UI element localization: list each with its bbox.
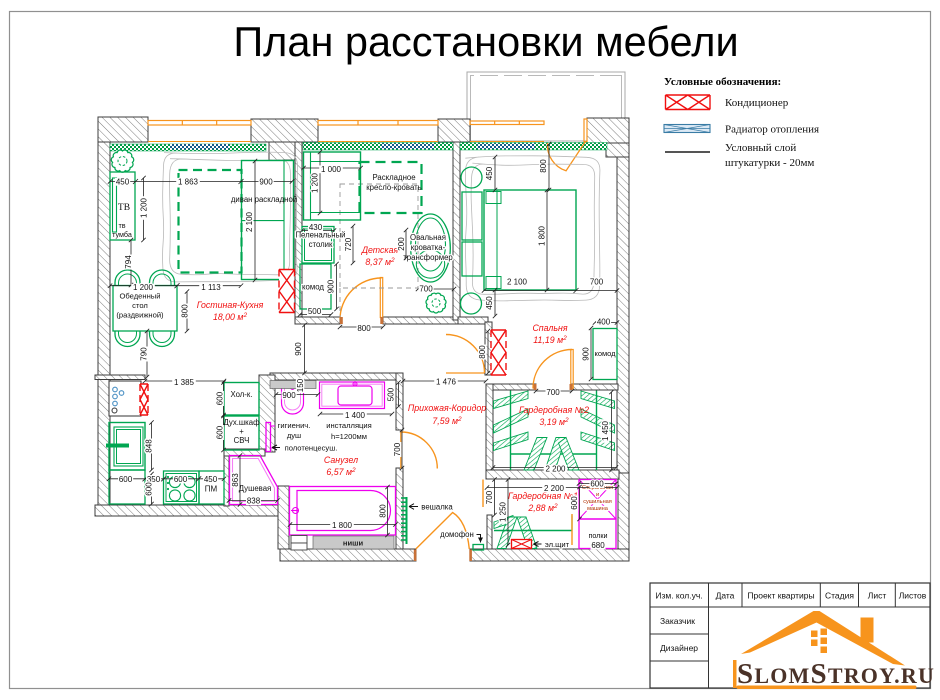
svg-text:ТВ: ТВ [118,203,130,213]
svg-text:900: 900 [582,347,591,361]
svg-text:8,37 м2: 8,37 м2 [365,257,395,267]
svg-text:2 100: 2 100 [507,278,528,287]
svg-text:Обеденный: Обеденный [120,292,161,301]
svg-text:SLOMSTROY.RU: SLOMSTROY.RU [737,658,935,690]
svg-text:машина: машина [587,506,609,512]
svg-text:Радиатор отопления: Радиатор отопления [725,124,819,136]
svg-text:душ: душ [287,431,301,440]
svg-text:+: + [239,427,244,436]
svg-text:штукатурки - 20мм: штукатурки - 20мм [725,157,814,169]
svg-text:1 250: 1 250 [499,501,508,522]
svg-text:900: 900 [294,342,303,356]
svg-text:800: 800 [181,304,190,318]
svg-text:Гардеробная №2: Гардеробная №2 [519,405,589,415]
svg-text:2 100: 2 100 [245,211,254,232]
svg-text:700: 700 [485,490,494,504]
svg-text:1 385: 1 385 [174,378,195,387]
svg-text:800: 800 [379,504,388,518]
svg-text:400: 400 [597,318,611,327]
svg-text:домофон: домофон [440,530,474,539]
svg-text:Дата: Дата [716,591,735,601]
svg-text:18,00 м2: 18,00 м2 [213,312,248,322]
svg-text:Душевая: Душевая [239,484,272,493]
svg-text:430: 430 [309,223,323,232]
svg-text:столик: столик [309,240,333,249]
svg-text:стол: стол [132,301,148,310]
svg-text:150: 150 [296,378,305,392]
svg-text:863: 863 [231,473,240,487]
svg-text:Проект квартиры: Проект квартиры [747,591,814,601]
svg-text:вешалка: вешалка [421,503,453,512]
svg-text:1 200: 1 200 [311,172,320,193]
svg-text:Изм. кол.уч.: Изм. кол.уч. [655,591,702,601]
svg-text:200: 200 [397,237,406,251]
svg-text:720: 720 [344,237,353,251]
svg-text:Лист: Лист [868,591,887,601]
svg-text:1 200: 1 200 [140,197,149,218]
svg-text:и: и [596,492,599,498]
svg-text:1 863: 1 863 [178,177,199,186]
svg-text:6,57 м2: 6,57 м2 [326,467,356,477]
svg-text:838: 838 [247,497,261,506]
svg-text:600: 600 [570,496,579,510]
svg-text:диван раскладной: диван раскладной [231,195,297,204]
svg-text:Заказчик: Заказчик [660,616,695,626]
svg-text:1 000: 1 000 [321,165,342,174]
svg-text:Спальня: Спальня [532,323,567,333]
svg-text:h=1200мм: h=1200мм [331,432,367,441]
svg-text:800: 800 [539,159,548,173]
svg-text:794: 794 [124,255,133,269]
svg-text:600: 600 [119,475,133,484]
svg-text:трансформер: трансформер [403,253,453,262]
svg-text:комод: комод [594,349,616,358]
svg-text:900: 900 [327,279,336,293]
svg-text:Пеленальный: Пеленальный [295,231,345,240]
svg-text:600: 600 [590,480,604,489]
svg-text:450: 450 [485,166,494,180]
svg-text:эл.щит: эл.щит [545,540,570,549]
svg-text:7,59 м2: 7,59 м2 [432,416,462,426]
svg-text:План расстановки мебели: План расстановки мебели [233,18,738,65]
svg-text:Прихожая-Коридор: Прихожая-Коридор [408,403,486,413]
svg-text:700: 700 [393,442,402,456]
svg-text:кресло-кровать: кресло-кровать [366,183,422,192]
svg-text:600: 600 [216,391,225,405]
svg-text:600: 600 [145,482,154,496]
svg-text:11,19 м2: 11,19 м2 [533,335,567,345]
svg-text:900: 900 [282,391,296,400]
svg-text:Санузел: Санузел [324,455,358,465]
svg-text:1 200: 1 200 [133,283,154,292]
svg-text:тв: тв [118,221,125,230]
svg-text:Гостиная-Кухня: Гостиная-Кухня [197,300,264,310]
svg-text:Дизайнер: Дизайнер [660,643,698,653]
svg-text:680: 680 [591,541,605,550]
svg-text:500: 500 [387,387,396,401]
svg-text:1 113: 1 113 [201,283,221,292]
svg-text:1 800: 1 800 [538,225,547,246]
svg-text:полки: полки [588,531,607,540]
svg-text:гигиенич.: гигиенич. [278,421,311,430]
svg-text:инсталляция: инсталляция [326,421,372,430]
svg-text:(раздвижной): (раздвижной) [116,311,164,320]
svg-text:Раскладное: Раскладное [372,173,415,182]
svg-text:800: 800 [357,324,371,333]
svg-text:790: 790 [140,347,149,361]
svg-text:450: 450 [485,296,494,310]
svg-text:1 450: 1 450 [601,420,610,441]
svg-text:900: 900 [259,177,273,186]
svg-text:700: 700 [546,388,560,397]
svg-text:комод: комод [302,283,324,292]
svg-text:600: 600 [216,425,225,439]
svg-text:2 200: 2 200 [544,484,565,493]
svg-text:2,88 м2: 2,88 м2 [527,503,558,513]
svg-text:Условный слой: Условный слой [725,142,796,154]
svg-text:Условные обозначения:: Условные обозначения: [664,76,781,88]
svg-text:600: 600 [174,475,188,484]
svg-text:ниши: ниши [343,539,364,548]
svg-text:Стадия: Стадия [825,591,854,601]
svg-text:Дух.шкаф: Дух.шкаф [223,418,260,427]
svg-text:700: 700 [419,285,433,294]
svg-text:СВЧ: СВЧ [234,436,250,445]
svg-text:Кондиционер: Кондиционер [725,97,789,109]
svg-text:Детская: Детская [361,245,399,255]
svg-text:Листов: Листов [899,591,927,601]
svg-text:848: 848 [145,439,154,453]
svg-text:сушильная: сушильная [583,499,612,505]
svg-text:1 476: 1 476 [436,378,457,387]
svg-text:450: 450 [204,475,218,484]
svg-text:кроватка-: кроватка- [411,243,446,252]
svg-text:1 400: 1 400 [345,411,366,420]
svg-text:Хол-к.: Хол-к. [230,390,252,399]
svg-text:1 800: 1 800 [332,521,353,530]
svg-text:2 200: 2 200 [545,464,566,473]
svg-text:Овальная: Овальная [410,233,446,242]
svg-text:700: 700 [590,278,604,287]
svg-text:800: 800 [478,345,487,359]
svg-text:ПМ: ПМ [205,485,218,494]
svg-text:тумба: тумба [112,230,132,239]
svg-text:3,19 м2: 3,19 м2 [539,417,569,427]
svg-text:450: 450 [116,177,130,186]
svg-text:500: 500 [308,307,322,316]
svg-text:полотенцесуш.: полотенцесуш. [285,444,338,453]
